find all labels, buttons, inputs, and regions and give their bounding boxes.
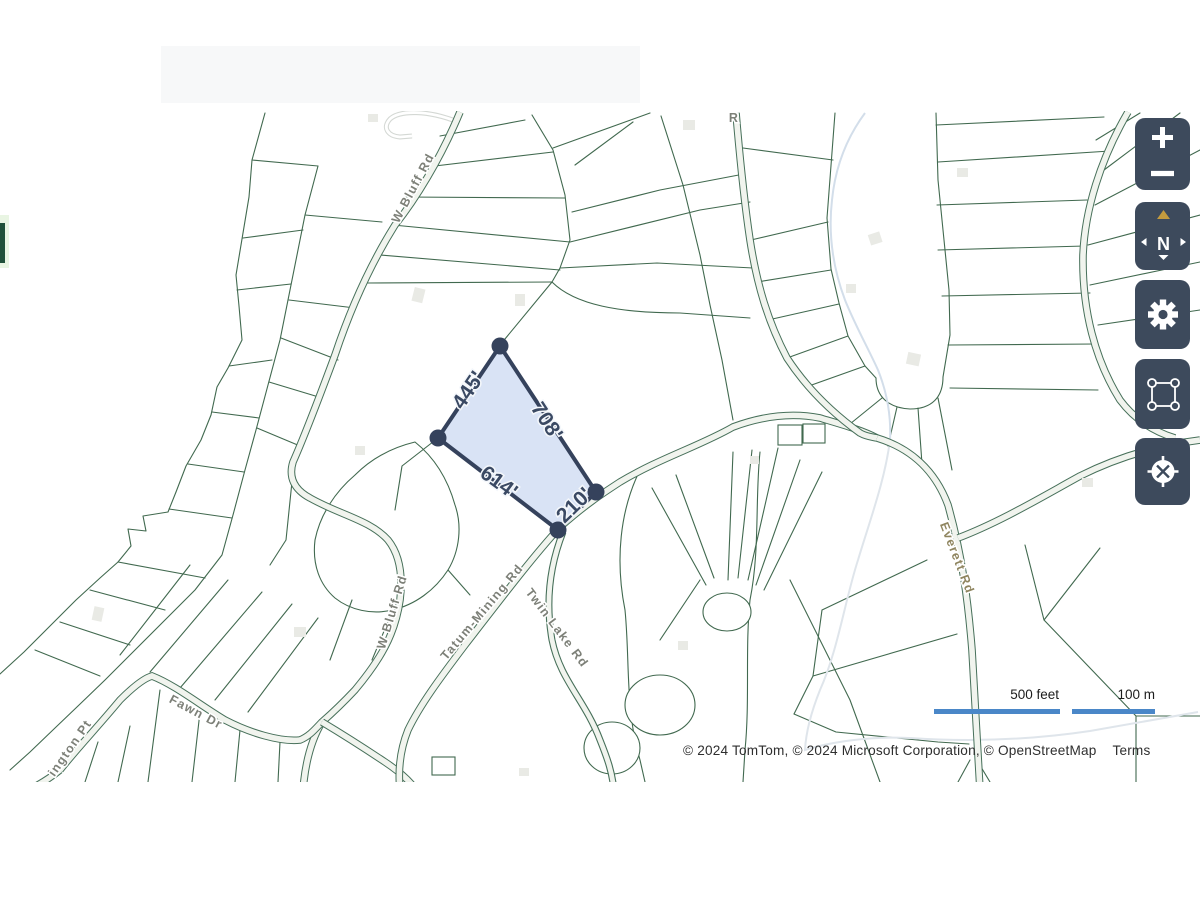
svg-text:N: N [1157, 234, 1170, 254]
svg-text:500 feet: 500 feet [1010, 687, 1059, 702]
svg-text:R: R [729, 111, 739, 125]
svg-text:100 m: 100 m [1117, 687, 1155, 702]
svg-text:© 2024 TomTom, © 2024 Microsof: © 2024 TomTom, © 2024 Microsoft Corporat… [683, 743, 1150, 758]
